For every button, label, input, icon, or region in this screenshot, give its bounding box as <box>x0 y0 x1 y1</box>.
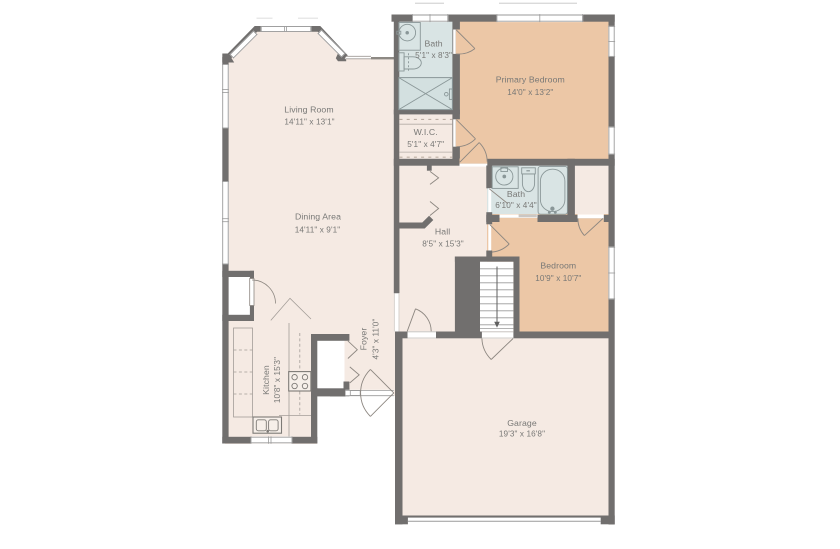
svg-text:Garage: Garage <box>507 418 537 428</box>
svg-text:Bedroom: Bedroom <box>540 260 576 270</box>
svg-text:Bath: Bath <box>424 38 442 48</box>
svg-text:6'10" x 4'4": 6'10" x 4'4" <box>495 201 537 210</box>
svg-text:19'3" x 16'8": 19'3" x 16'8" <box>499 430 545 439</box>
svg-text:Foyer: Foyer <box>359 328 369 351</box>
svg-text:14'0" x 13'2": 14'0" x 13'2" <box>507 88 553 97</box>
svg-text:Hall: Hall <box>435 226 450 236</box>
svg-text:10'8" x 15'3": 10'8" x 15'3" <box>273 357 282 403</box>
svg-text:Primary Bedroom: Primary Bedroom <box>496 75 565 85</box>
svg-text:4'3" x 11'0": 4'3" x 11'0" <box>371 319 380 360</box>
svg-text:Kitchen: Kitchen <box>261 365 271 395</box>
svg-text:5'1" x 8'3": 5'1" x 8'3" <box>415 51 452 60</box>
svg-text:Living Room: Living Room <box>284 104 333 114</box>
svg-text:Bath: Bath <box>507 189 525 199</box>
svg-text:10'9" x 10'7": 10'9" x 10'7" <box>535 274 581 283</box>
svg-text:Dining Area: Dining Area <box>295 212 341 222</box>
svg-text:W.I.C.: W.I.C. <box>414 127 438 137</box>
svg-text:14'11" x 13'1": 14'11" x 13'1" <box>284 117 334 126</box>
svg-text:5'1" x 4'7": 5'1" x 4'7" <box>407 140 444 149</box>
svg-text:14'11" x 9'1": 14'11" x 9'1" <box>295 225 341 234</box>
svg-text:8'5" x 15'3": 8'5" x 15'3" <box>422 240 464 249</box>
